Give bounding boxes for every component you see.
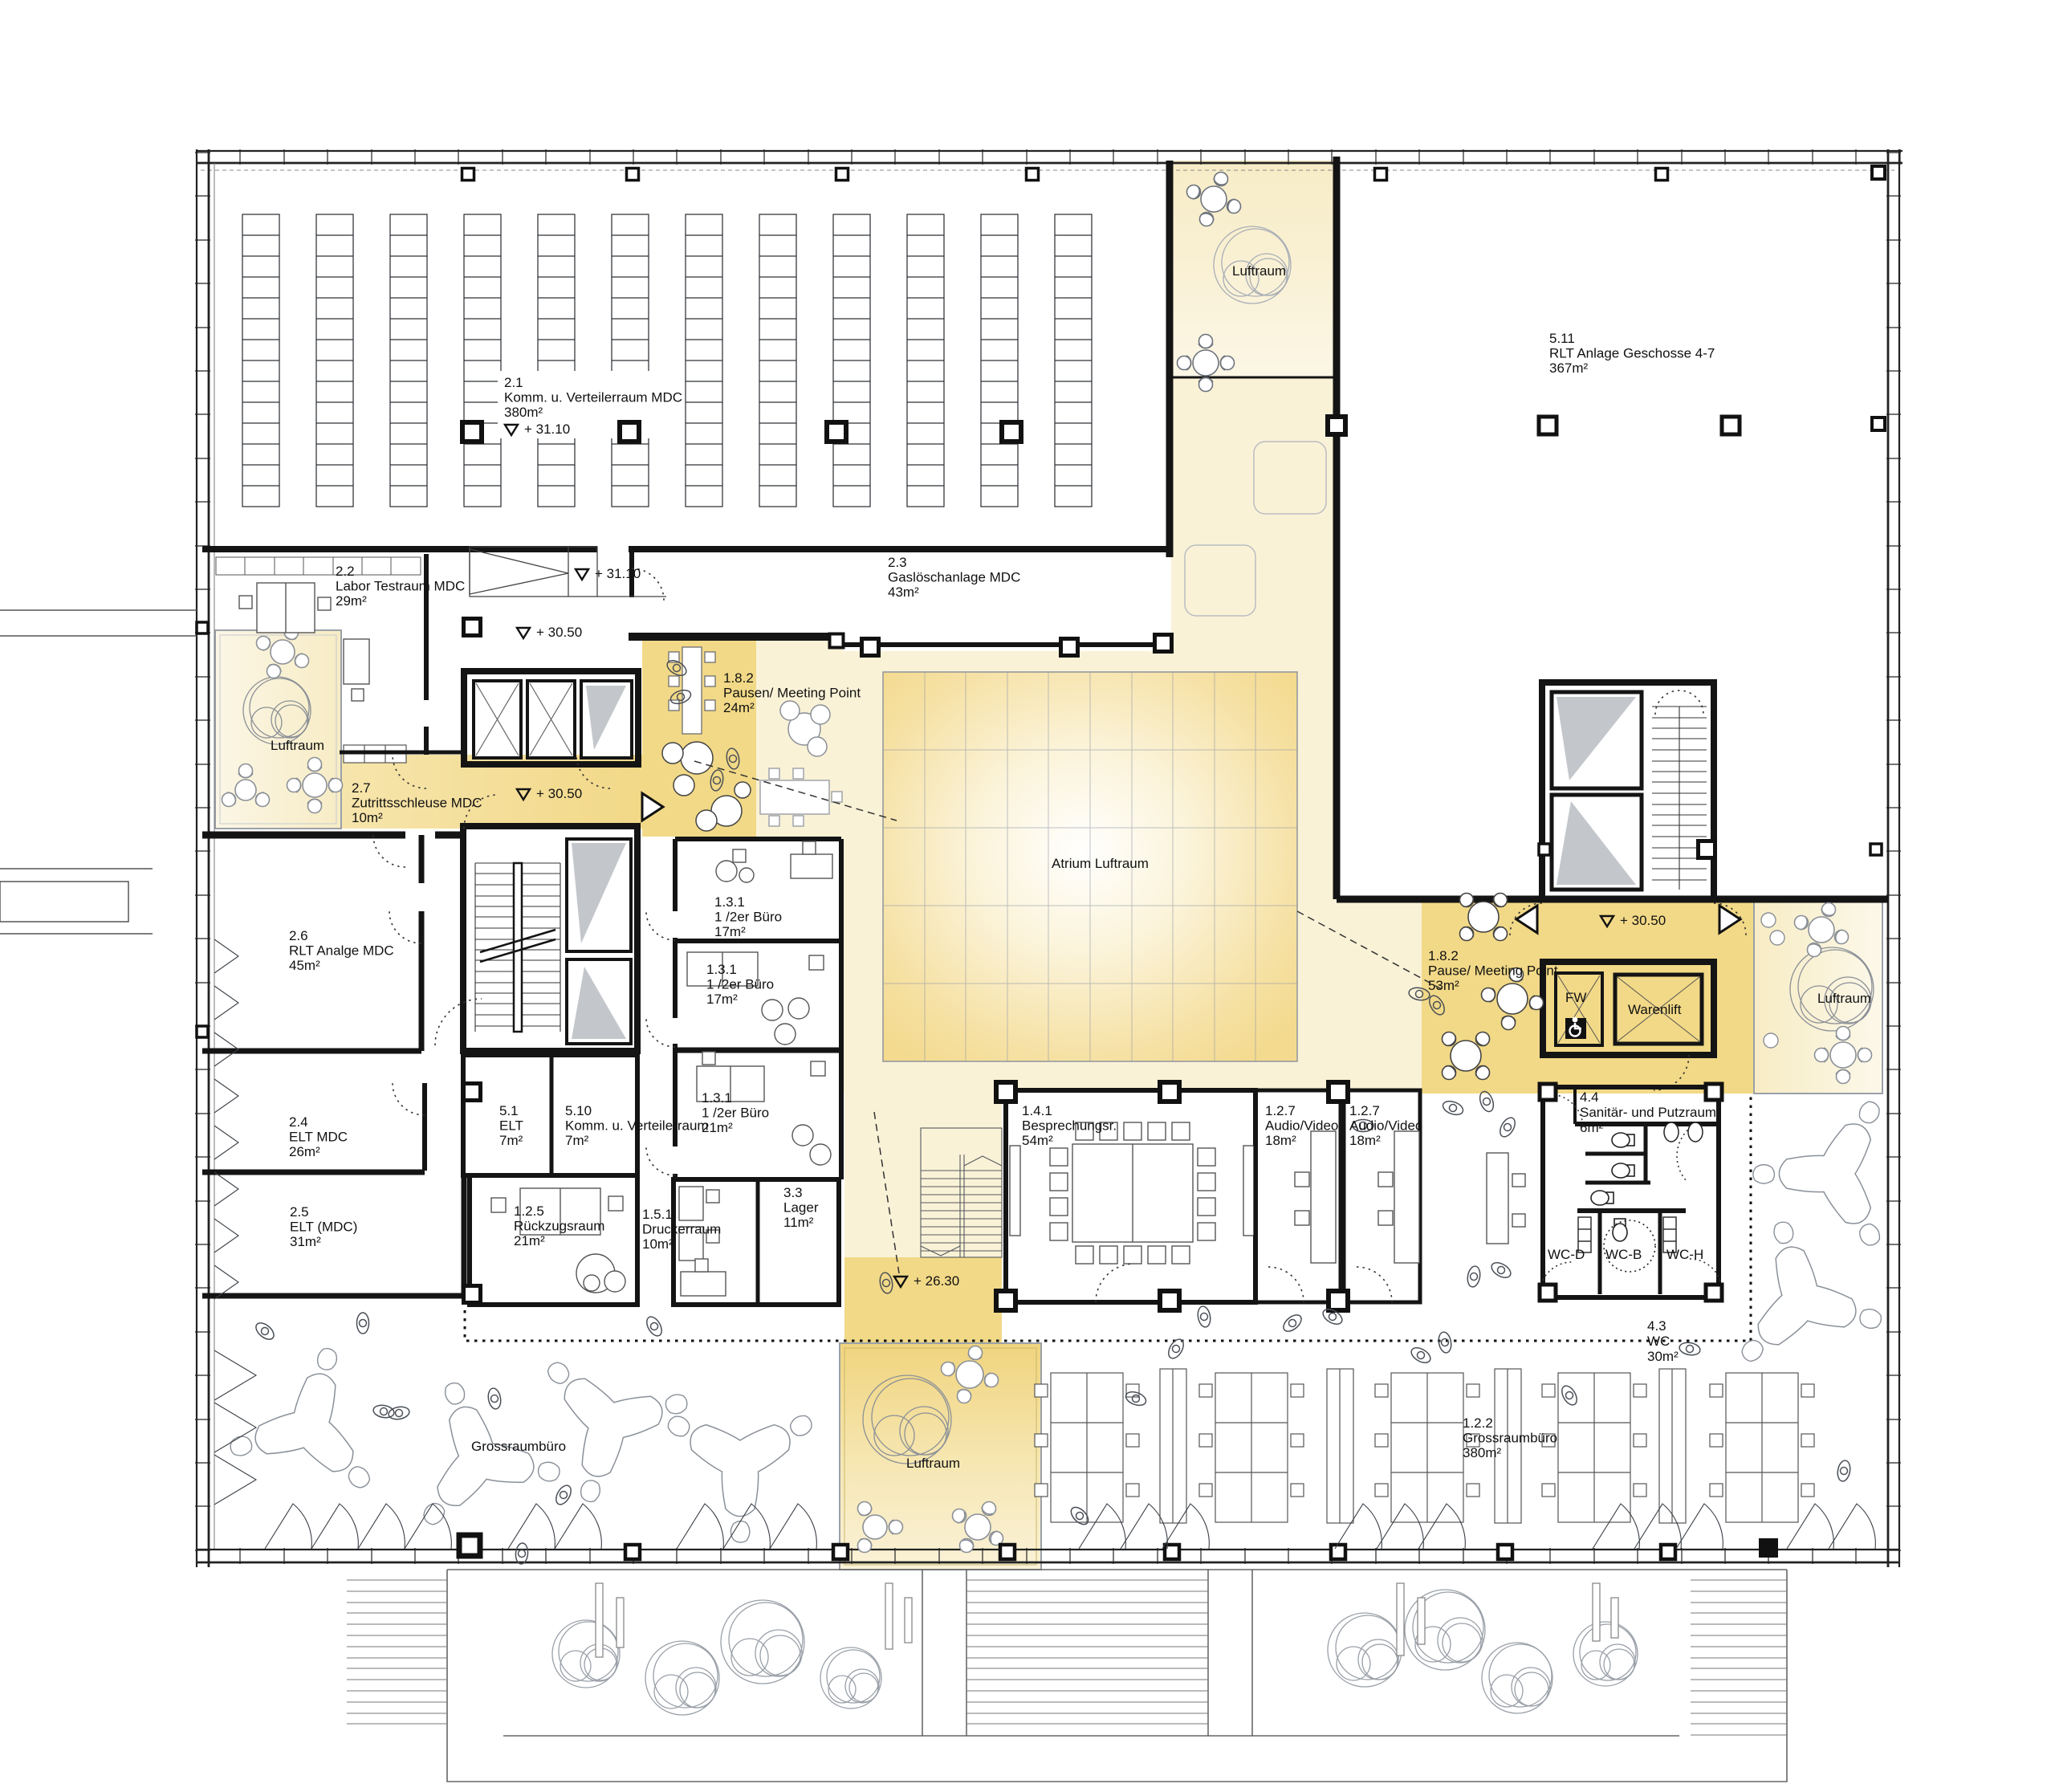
svg-text:WC-H: WC-H (1666, 1247, 1703, 1262)
svg-text:WC-B: WC-B (1605, 1247, 1642, 1262)
svg-text:+ 31.10: + 31.10 (595, 566, 641, 581)
svg-text:Warenlift: Warenlift (1628, 1002, 1682, 1017)
svg-text:+ 30.50: + 30.50 (536, 786, 582, 801)
svg-text:Luftraum: Luftraum (1817, 991, 1871, 1006)
svg-text:Atrium Luftraum: Atrium Luftraum (1052, 856, 1149, 871)
svg-text:Luftraum: Luftraum (271, 738, 324, 753)
svg-text:+ 26.30: + 26.30 (914, 1273, 959, 1289)
svg-text:+ 30.50: + 30.50 (536, 625, 582, 640)
svg-text:Grossraumbüro: Grossraumbüro (471, 1439, 566, 1454)
svg-text:+ 31.10: + 31.10 (524, 422, 570, 437)
svg-text:WC-D: WC-D (1548, 1247, 1585, 1262)
svg-text:Luftraum: Luftraum (1232, 263, 1286, 279)
svg-text:+ 30.50: + 30.50 (1620, 913, 1666, 928)
svg-text:Luftraum: Luftraum (906, 1456, 960, 1471)
svg-text:FW: FW (1565, 990, 1586, 1005)
